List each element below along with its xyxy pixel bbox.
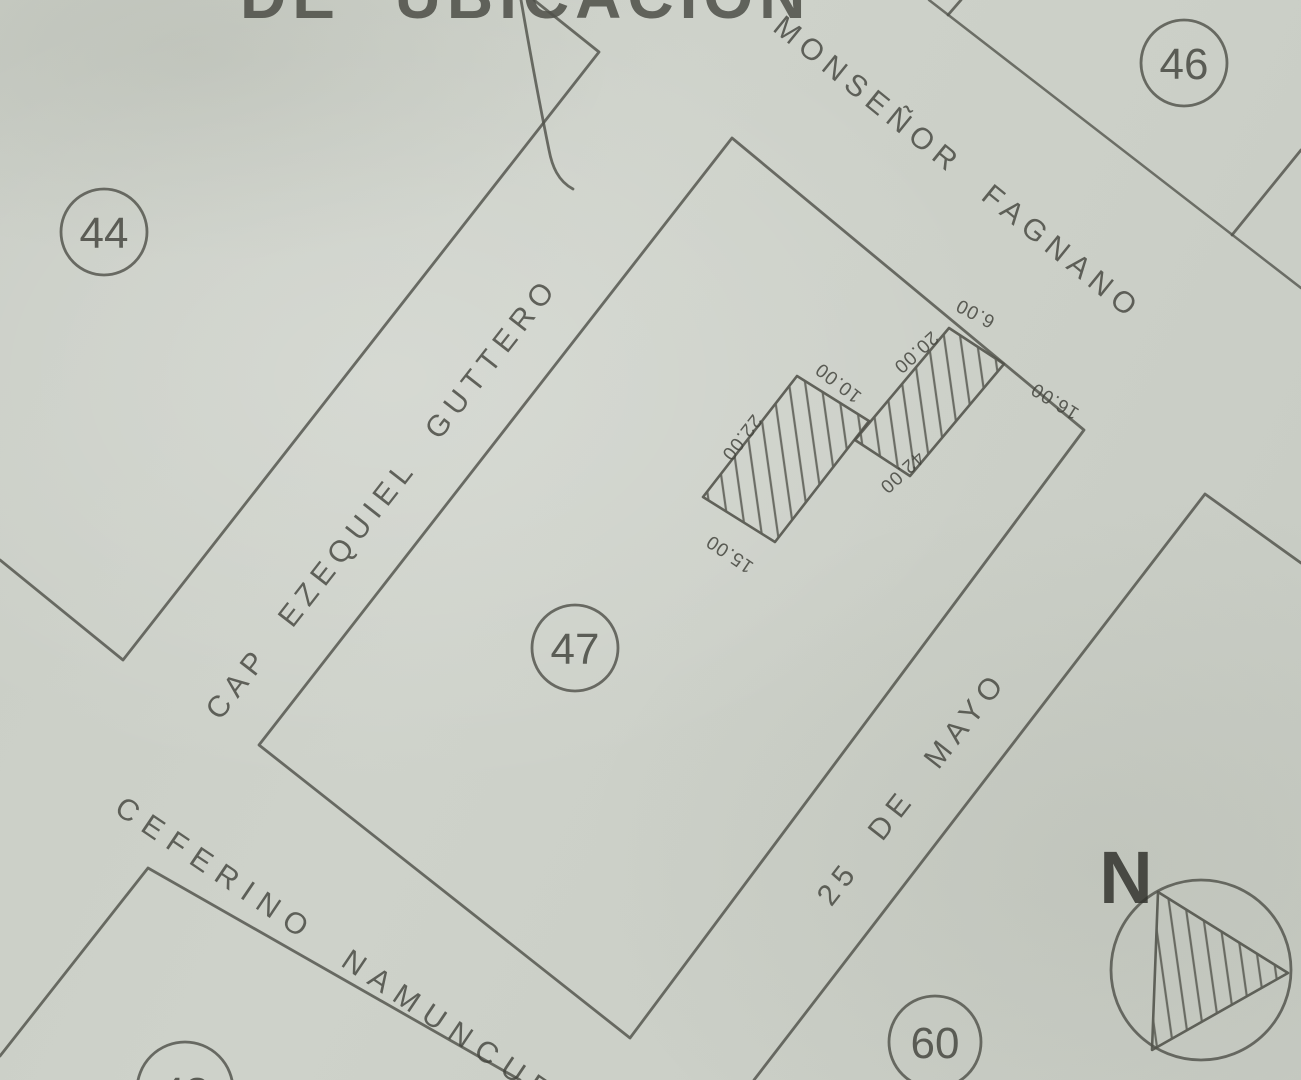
block-60-number: 60	[911, 1019, 960, 1068]
block-46-west-edge	[948, 0, 961, 15]
compass-north-label: N	[1099, 836, 1152, 919]
north-arrow: N	[1099, 836, 1291, 1060]
block-44-number: 44	[80, 209, 129, 258]
block-46-number: 46	[1160, 40, 1209, 89]
dim-label-15: 15.00	[702, 530, 757, 577]
block-48-number: 48	[161, 1069, 210, 1080]
compass-needle	[1152, 892, 1288, 1050]
street-name-monsenor-fagnano: MONSEÑOR FAGNANO	[767, 9, 1149, 327]
scanned-location-plan: DE UBICACIÓN 44 46 MONSEÑOR FAGNANO 47 C…	[0, 0, 1301, 1080]
block-47-number: 47	[551, 625, 600, 674]
street-line-fagnano	[929, 0, 1301, 288]
street-name-ceferino-namuncura: CEFERINO NAMUNCURA	[109, 791, 590, 1080]
site-plan-drawing: DE UBICACIÓN 44 46 MONSEÑOR FAGNANO 47 C…	[0, 0, 1301, 1080]
dim-label-16: 16.00	[1027, 378, 1083, 424]
block-47-outline	[259, 138, 1084, 1038]
street-name-cap-ezequiel-guttero: CAP EZEQUIEL GUTTERO	[200, 271, 566, 726]
block-46-east-edge	[1232, 150, 1301, 235]
